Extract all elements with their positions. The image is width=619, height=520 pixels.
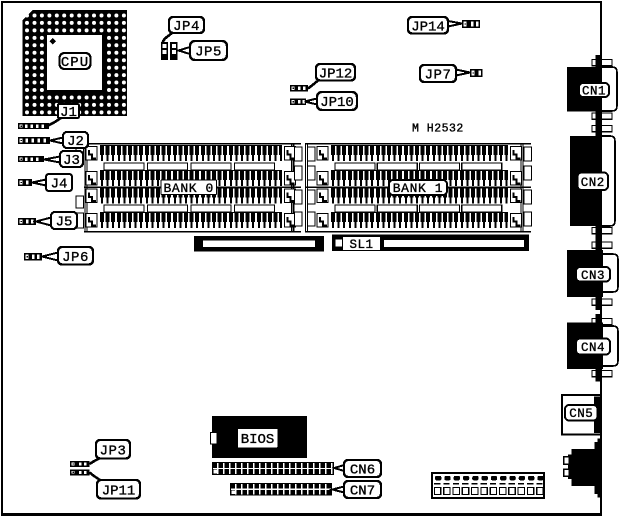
svg-text:CN4: CN4 <box>581 341 605 355</box>
svg-text:J1: J1 <box>60 105 77 121</box>
svg-text:CN2: CN2 <box>581 176 605 190</box>
svg-text:JP10: JP10 <box>320 95 354 111</box>
svg-text:JP7: JP7 <box>425 68 452 84</box>
svg-text:JP12: JP12 <box>319 66 353 82</box>
svg-text:CPU: CPU <box>61 55 89 71</box>
svg-text:J3: J3 <box>63 153 80 169</box>
svg-text:BIOS: BIOS <box>241 432 275 448</box>
svg-text:J5: J5 <box>56 215 73 231</box>
svg-text:BANK 1: BANK 1 <box>393 181 443 196</box>
svg-text:CN7: CN7 <box>350 484 375 500</box>
svg-text:M H2532: M H2532 <box>412 123 464 136</box>
svg-text:JP11: JP11 <box>102 483 136 499</box>
svg-text:CN3: CN3 <box>581 269 605 283</box>
svg-text:J4: J4 <box>51 177 68 193</box>
svg-text:BANK 0: BANK 0 <box>164 181 214 196</box>
svg-text:JP3: JP3 <box>100 443 127 459</box>
svg-text:JP14: JP14 <box>411 19 445 35</box>
svg-text:CN1: CN1 <box>582 85 606 99</box>
svg-text:CN6: CN6 <box>350 463 375 479</box>
svg-text:J2: J2 <box>67 134 84 150</box>
svg-text:CN5: CN5 <box>569 407 593 421</box>
svg-text:SL1: SL1 <box>349 238 373 252</box>
svg-text:JP5: JP5 <box>195 45 222 61</box>
svg-text:JP4: JP4 <box>173 19 200 35</box>
svg-text:JP6: JP6 <box>62 250 89 266</box>
